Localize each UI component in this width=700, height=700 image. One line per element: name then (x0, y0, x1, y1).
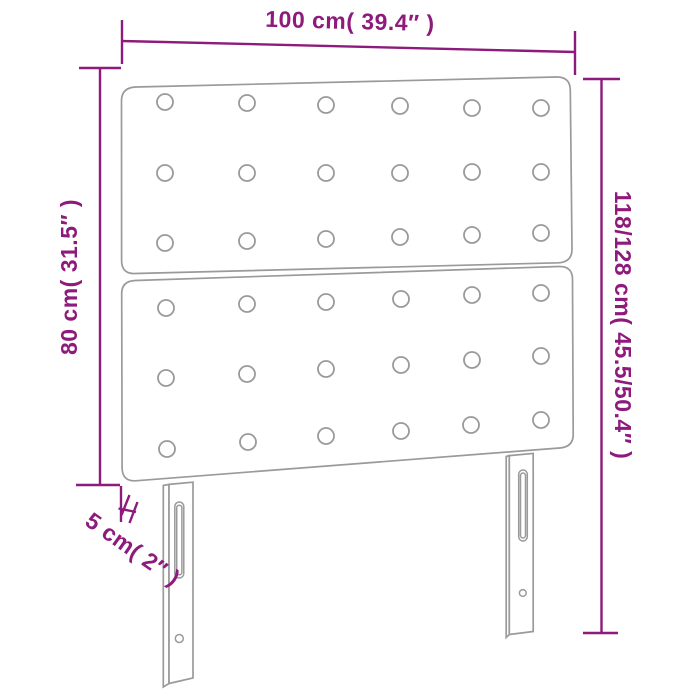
tufting-button (463, 417, 479, 433)
tufting-button (240, 434, 256, 450)
tufting-button (239, 95, 255, 111)
tufting-button (464, 227, 480, 243)
total-height-dimension-label: 118/128 cm( 45.5/50.4″ ) (610, 191, 636, 460)
tufting-button (158, 300, 174, 316)
tufting-button (392, 98, 408, 114)
tufting-button (318, 97, 334, 113)
headboard-upper-panel (122, 77, 573, 274)
width-dimension-line (122, 41, 575, 52)
tufting-button (239, 296, 255, 312)
width-dimension: 100 cm( 39.4″ ) (122, 6, 575, 75)
tufting-button (533, 285, 549, 301)
headboard-dimension-drawing: 100 cm( 39.4″ ) 80 cm( 31.5″ ) 118/128 c… (0, 0, 700, 700)
tufting-button (239, 366, 255, 382)
tufting-button (159, 441, 175, 457)
product-dimension-diagram: 100 cm( 39.4″ ) 80 cm( 31.5″ ) 118/128 c… (0, 0, 700, 700)
tufting-button (239, 165, 255, 181)
tufting-button (464, 352, 480, 368)
tufting-button (464, 287, 480, 303)
tufting-button (318, 361, 334, 377)
tufting-button (392, 165, 408, 181)
tufting-button (533, 164, 549, 180)
tufting-button (533, 348, 549, 364)
tufting-button (318, 165, 334, 181)
tufting-button (533, 412, 549, 428)
tufting-button (318, 428, 334, 444)
tufting-button (533, 225, 549, 241)
headboard-lower-panel (122, 266, 574, 480)
tufting-button (157, 235, 173, 251)
total-height-dimension: 118/128 cm( 45.5/50.4″ ) (583, 79, 636, 633)
panel-height-dimension-label: 80 cm( 31.5″ ) (56, 199, 82, 355)
tufting-button (158, 370, 174, 386)
tufting-button (239, 233, 255, 249)
panel-height-dimension: 80 cm( 31.5″ ) (56, 68, 121, 485)
tufting-button (464, 164, 480, 180)
right-leg (506, 453, 533, 637)
tufting-button (393, 423, 409, 439)
tufting-button (393, 291, 409, 307)
tufting-button (318, 231, 334, 247)
tufting-button (392, 229, 408, 245)
width-dimension-label: 100 cm( 39.4″ ) (265, 6, 435, 36)
thickness-tick-front (122, 495, 130, 515)
tufting-button (393, 357, 409, 373)
tufting-button (157, 94, 173, 110)
tufting-button (318, 294, 334, 310)
tufting-button (157, 165, 173, 181)
tufting-button (533, 100, 549, 116)
tufting-button (464, 100, 480, 116)
